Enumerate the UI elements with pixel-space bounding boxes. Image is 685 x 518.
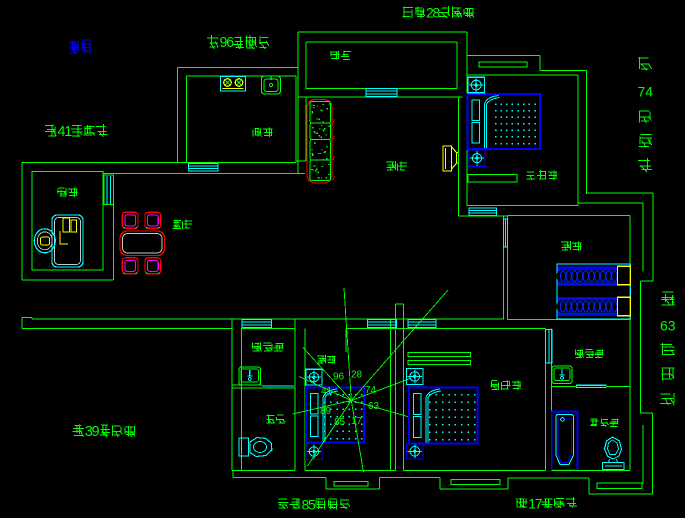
- svg-text:6: 6: [226, 35, 234, 51]
- svg-text:17: 17: [351, 416, 363, 427]
- svg-text:63: 63: [368, 401, 380, 412]
- svg-text:1: 1: [64, 124, 72, 140]
- svg-text:96: 96: [333, 372, 345, 383]
- svg-text:89: 89: [320, 406, 332, 417]
- svg-text:74: 74: [638, 84, 654, 100]
- svg-text:9: 9: [92, 424, 100, 440]
- svg-text:5: 5: [308, 497, 316, 513]
- svg-text:63: 63: [660, 318, 676, 334]
- svg-text:74: 74: [365, 385, 377, 396]
- svg-text:28: 28: [351, 370, 363, 381]
- svg-text:85: 85: [334, 417, 346, 428]
- svg-text:7: 7: [535, 496, 543, 512]
- svg-text:41: 41: [321, 386, 333, 397]
